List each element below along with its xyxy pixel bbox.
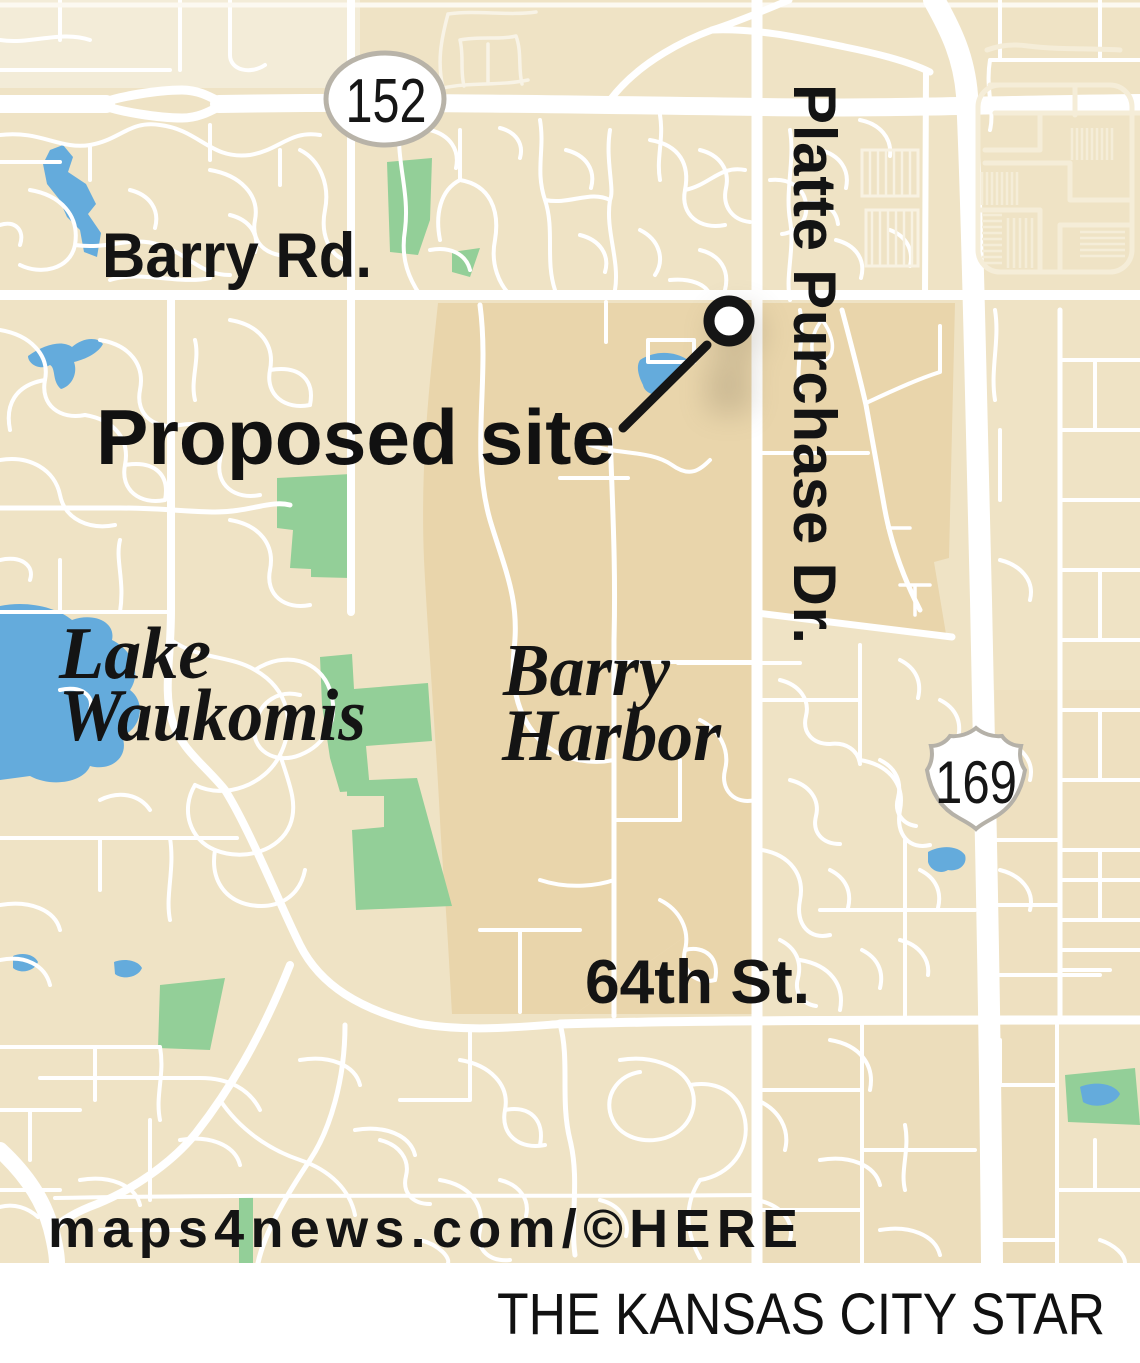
svg-text:152: 152 bbox=[346, 67, 427, 136]
svg-text:64th St.: 64th St. bbox=[585, 948, 810, 1017]
svg-text:Platte Purchase Dr.: Platte Purchase Dr. bbox=[781, 84, 848, 644]
svg-text:Barry Rd.: Barry Rd. bbox=[102, 221, 372, 291]
svg-text:Harbor: Harbor bbox=[501, 695, 722, 777]
svg-text:maps4news.com/©HERE: maps4news.com/©HERE bbox=[48, 1199, 798, 1259]
svg-text:Waukomis: Waukomis bbox=[59, 675, 366, 757]
svg-text:169: 169 bbox=[935, 749, 1017, 816]
svg-text:THE KANSAS CITY STAR: THE KANSAS CITY STAR bbox=[497, 1282, 1105, 1347]
svg-text:Proposed site: Proposed site bbox=[96, 393, 615, 481]
